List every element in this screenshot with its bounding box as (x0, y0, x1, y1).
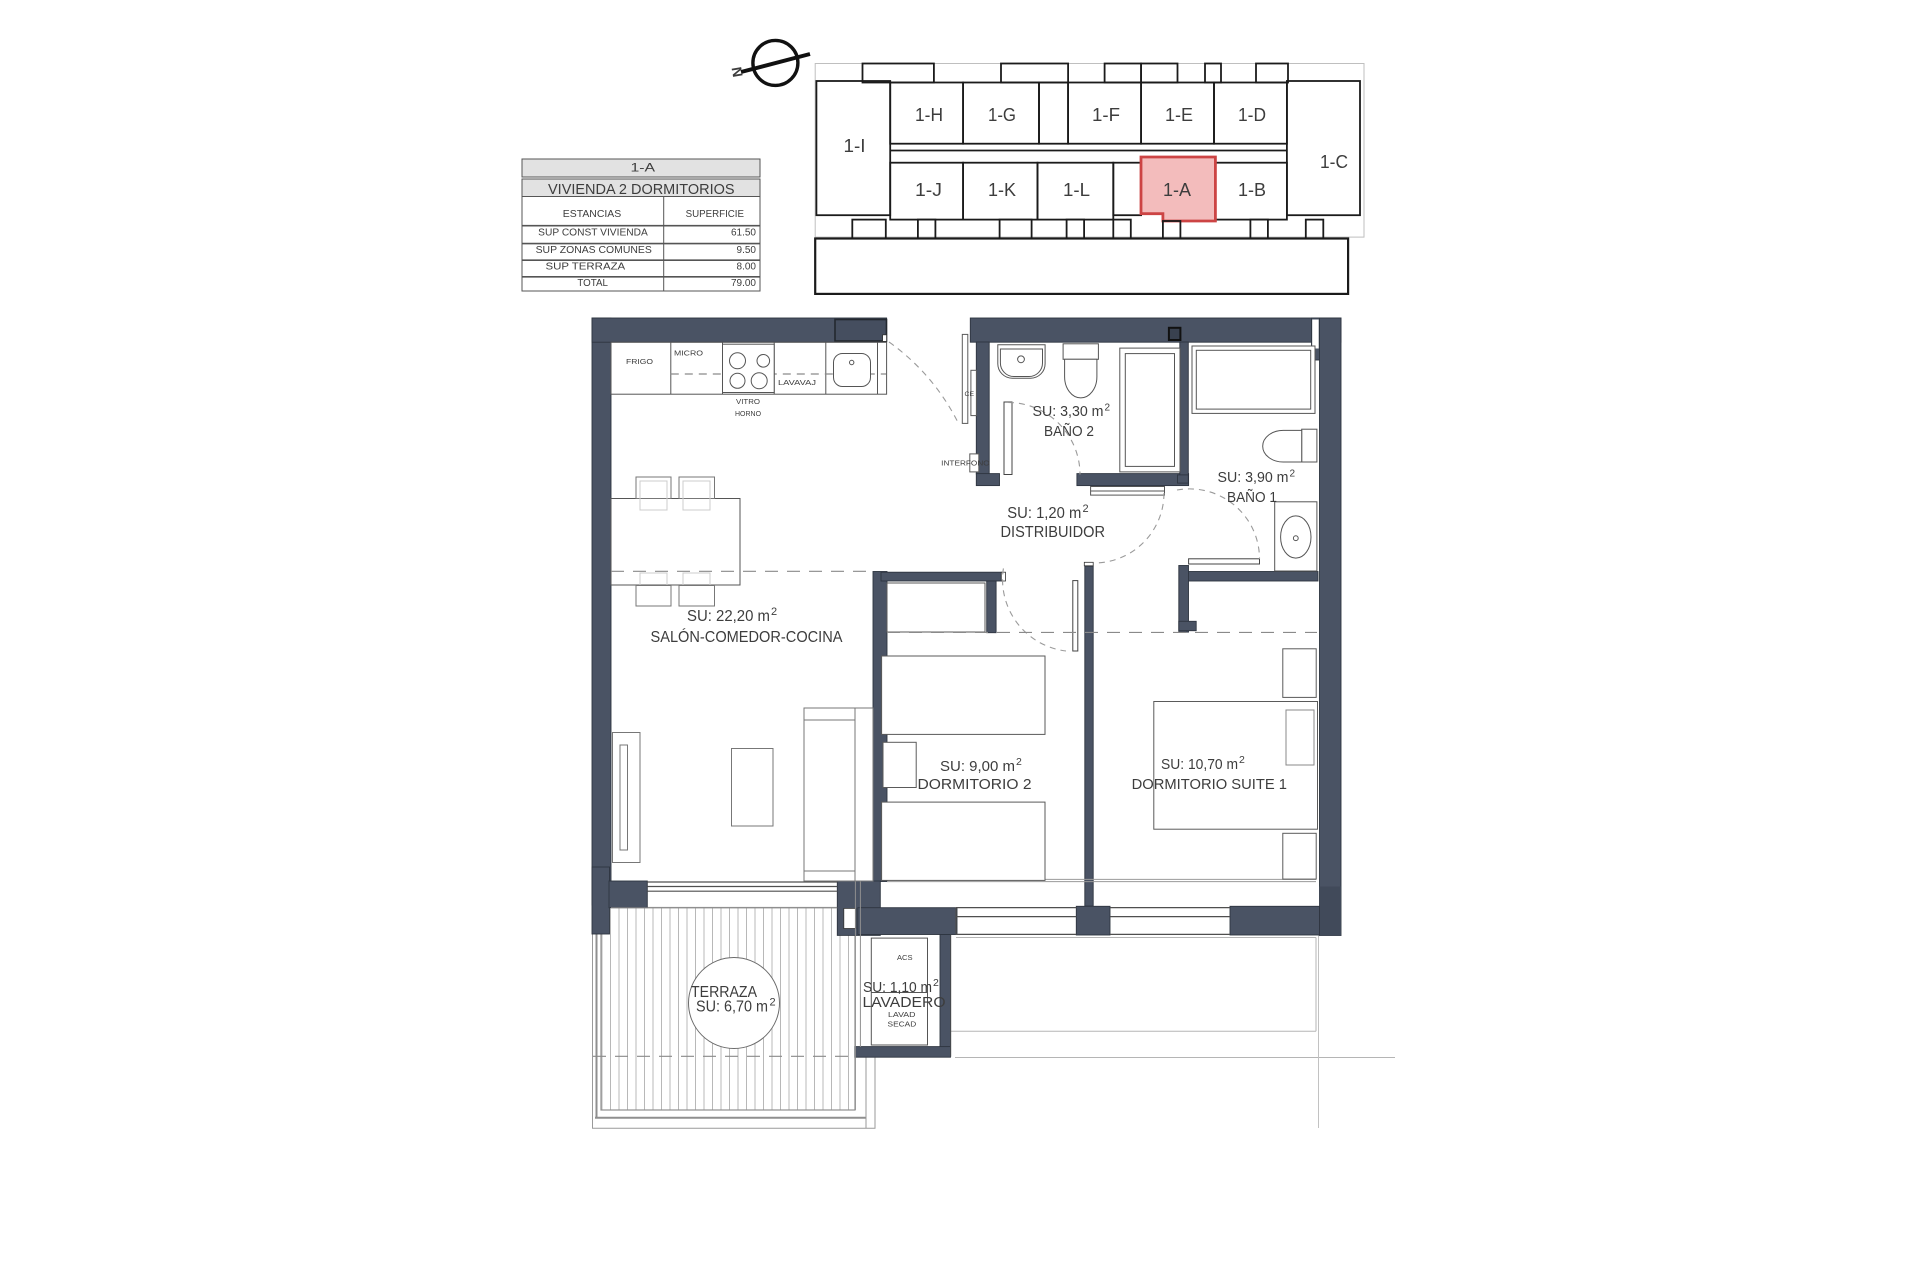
svg-text:9.50: 9.50 (737, 245, 757, 256)
svg-text:LAVAD: LAVAD (888, 1010, 916, 1019)
svg-text:CE: CE (965, 391, 975, 398)
svg-text:SU: 22,20 m: SU: 22,20 m (687, 608, 770, 625)
svg-text:LAVAVAJ: LAVAVAJ (778, 378, 816, 387)
svg-text:SU: 1,20 m: SU: 1,20 m (1007, 505, 1081, 522)
svg-text:2: 2 (1239, 754, 1245, 766)
svg-text:1-K: 1-K (988, 179, 1017, 200)
svg-text:BAÑO 1: BAÑO 1 (1227, 489, 1277, 506)
svg-text:SUP CONST VIVIENDA: SUP CONST VIVIENDA (538, 228, 648, 239)
svg-text:SU: 9,00 m: SU: 9,00 m (940, 758, 1015, 775)
svg-text:1-J: 1-J (915, 179, 942, 200)
svg-text:SU: 10,70 m: SU: 10,70 m (1161, 756, 1238, 773)
svg-text:1-H: 1-H (915, 104, 943, 125)
svg-text:TOTAL: TOTAL (577, 278, 608, 289)
svg-text:1-E: 1-E (1165, 104, 1193, 125)
svg-text:ACS: ACS (897, 953, 913, 962)
svg-text:1-A: 1-A (1163, 179, 1192, 200)
svg-text:DORMITORIO SUITE 1: DORMITORIO SUITE 1 (1132, 776, 1287, 793)
svg-text:HORNO: HORNO (735, 409, 761, 418)
svg-text:1-L: 1-L (1063, 179, 1090, 200)
svg-text:1-B: 1-B (1238, 179, 1266, 200)
svg-text:2: 2 (1105, 403, 1111, 414)
svg-text:SU: 3,90 m: SU: 3,90 m (1218, 470, 1289, 486)
svg-text:SUP ZONAS COMUNES: SUP ZONAS COMUNES (536, 245, 653, 256)
svg-text:BAÑO 2: BAÑO 2 (1044, 423, 1094, 440)
svg-text:1-C: 1-C (1320, 151, 1348, 172)
svg-text:8.00: 8.00 (737, 262, 757, 273)
svg-text:2: 2 (770, 997, 776, 1009)
svg-text:FRIGO: FRIGO (626, 357, 653, 366)
svg-text:79.00: 79.00 (731, 278, 756, 289)
svg-text:SU: 3,30 m: SU: 3,30 m (1033, 404, 1104, 420)
svg-text:2: 2 (1083, 503, 1089, 515)
svg-text:SECAD: SECAD (888, 1020, 917, 1029)
svg-text:LAVADERO: LAVADERO (863, 994, 946, 1011)
svg-text:2: 2 (933, 977, 939, 989)
svg-text:1-D: 1-D (1238, 104, 1266, 125)
svg-text:1-A: 1-A (631, 161, 656, 175)
svg-text:MICRO: MICRO (674, 349, 703, 358)
svg-text:2: 2 (771, 606, 777, 618)
svg-text:SUP TERRAZA: SUP TERRAZA (546, 262, 626, 273)
svg-text:2: 2 (1016, 756, 1022, 768)
svg-text:SUPERFICIE: SUPERFICIE (686, 209, 745, 220)
svg-text:61.50: 61.50 (731, 228, 756, 239)
svg-text:VITRO: VITRO (736, 397, 760, 406)
svg-text:DORMITORIO 2: DORMITORIO 2 (918, 776, 1032, 793)
svg-text:SU: 6,70 m: SU: 6,70 m (696, 999, 768, 1016)
svg-text:INTERFONO: INTERFONO (941, 461, 990, 468)
svg-text:1-I: 1-I (844, 135, 866, 156)
svg-text:2: 2 (1290, 469, 1296, 480)
svg-text:ESTANCIAS: ESTANCIAS (563, 209, 622, 220)
svg-text:1-G: 1-G (988, 104, 1016, 125)
svg-text:VIVIENDA 2 DORMITORIOS: VIVIENDA 2 DORMITORIOS (548, 182, 735, 198)
svg-text:1-F: 1-F (1092, 104, 1120, 125)
svg-text:SALÓN-COMEDOR-COCINA: SALÓN-COMEDOR-COCINA (651, 627, 843, 646)
svg-text:DISTRIBUIDOR: DISTRIBUIDOR (1001, 524, 1106, 541)
